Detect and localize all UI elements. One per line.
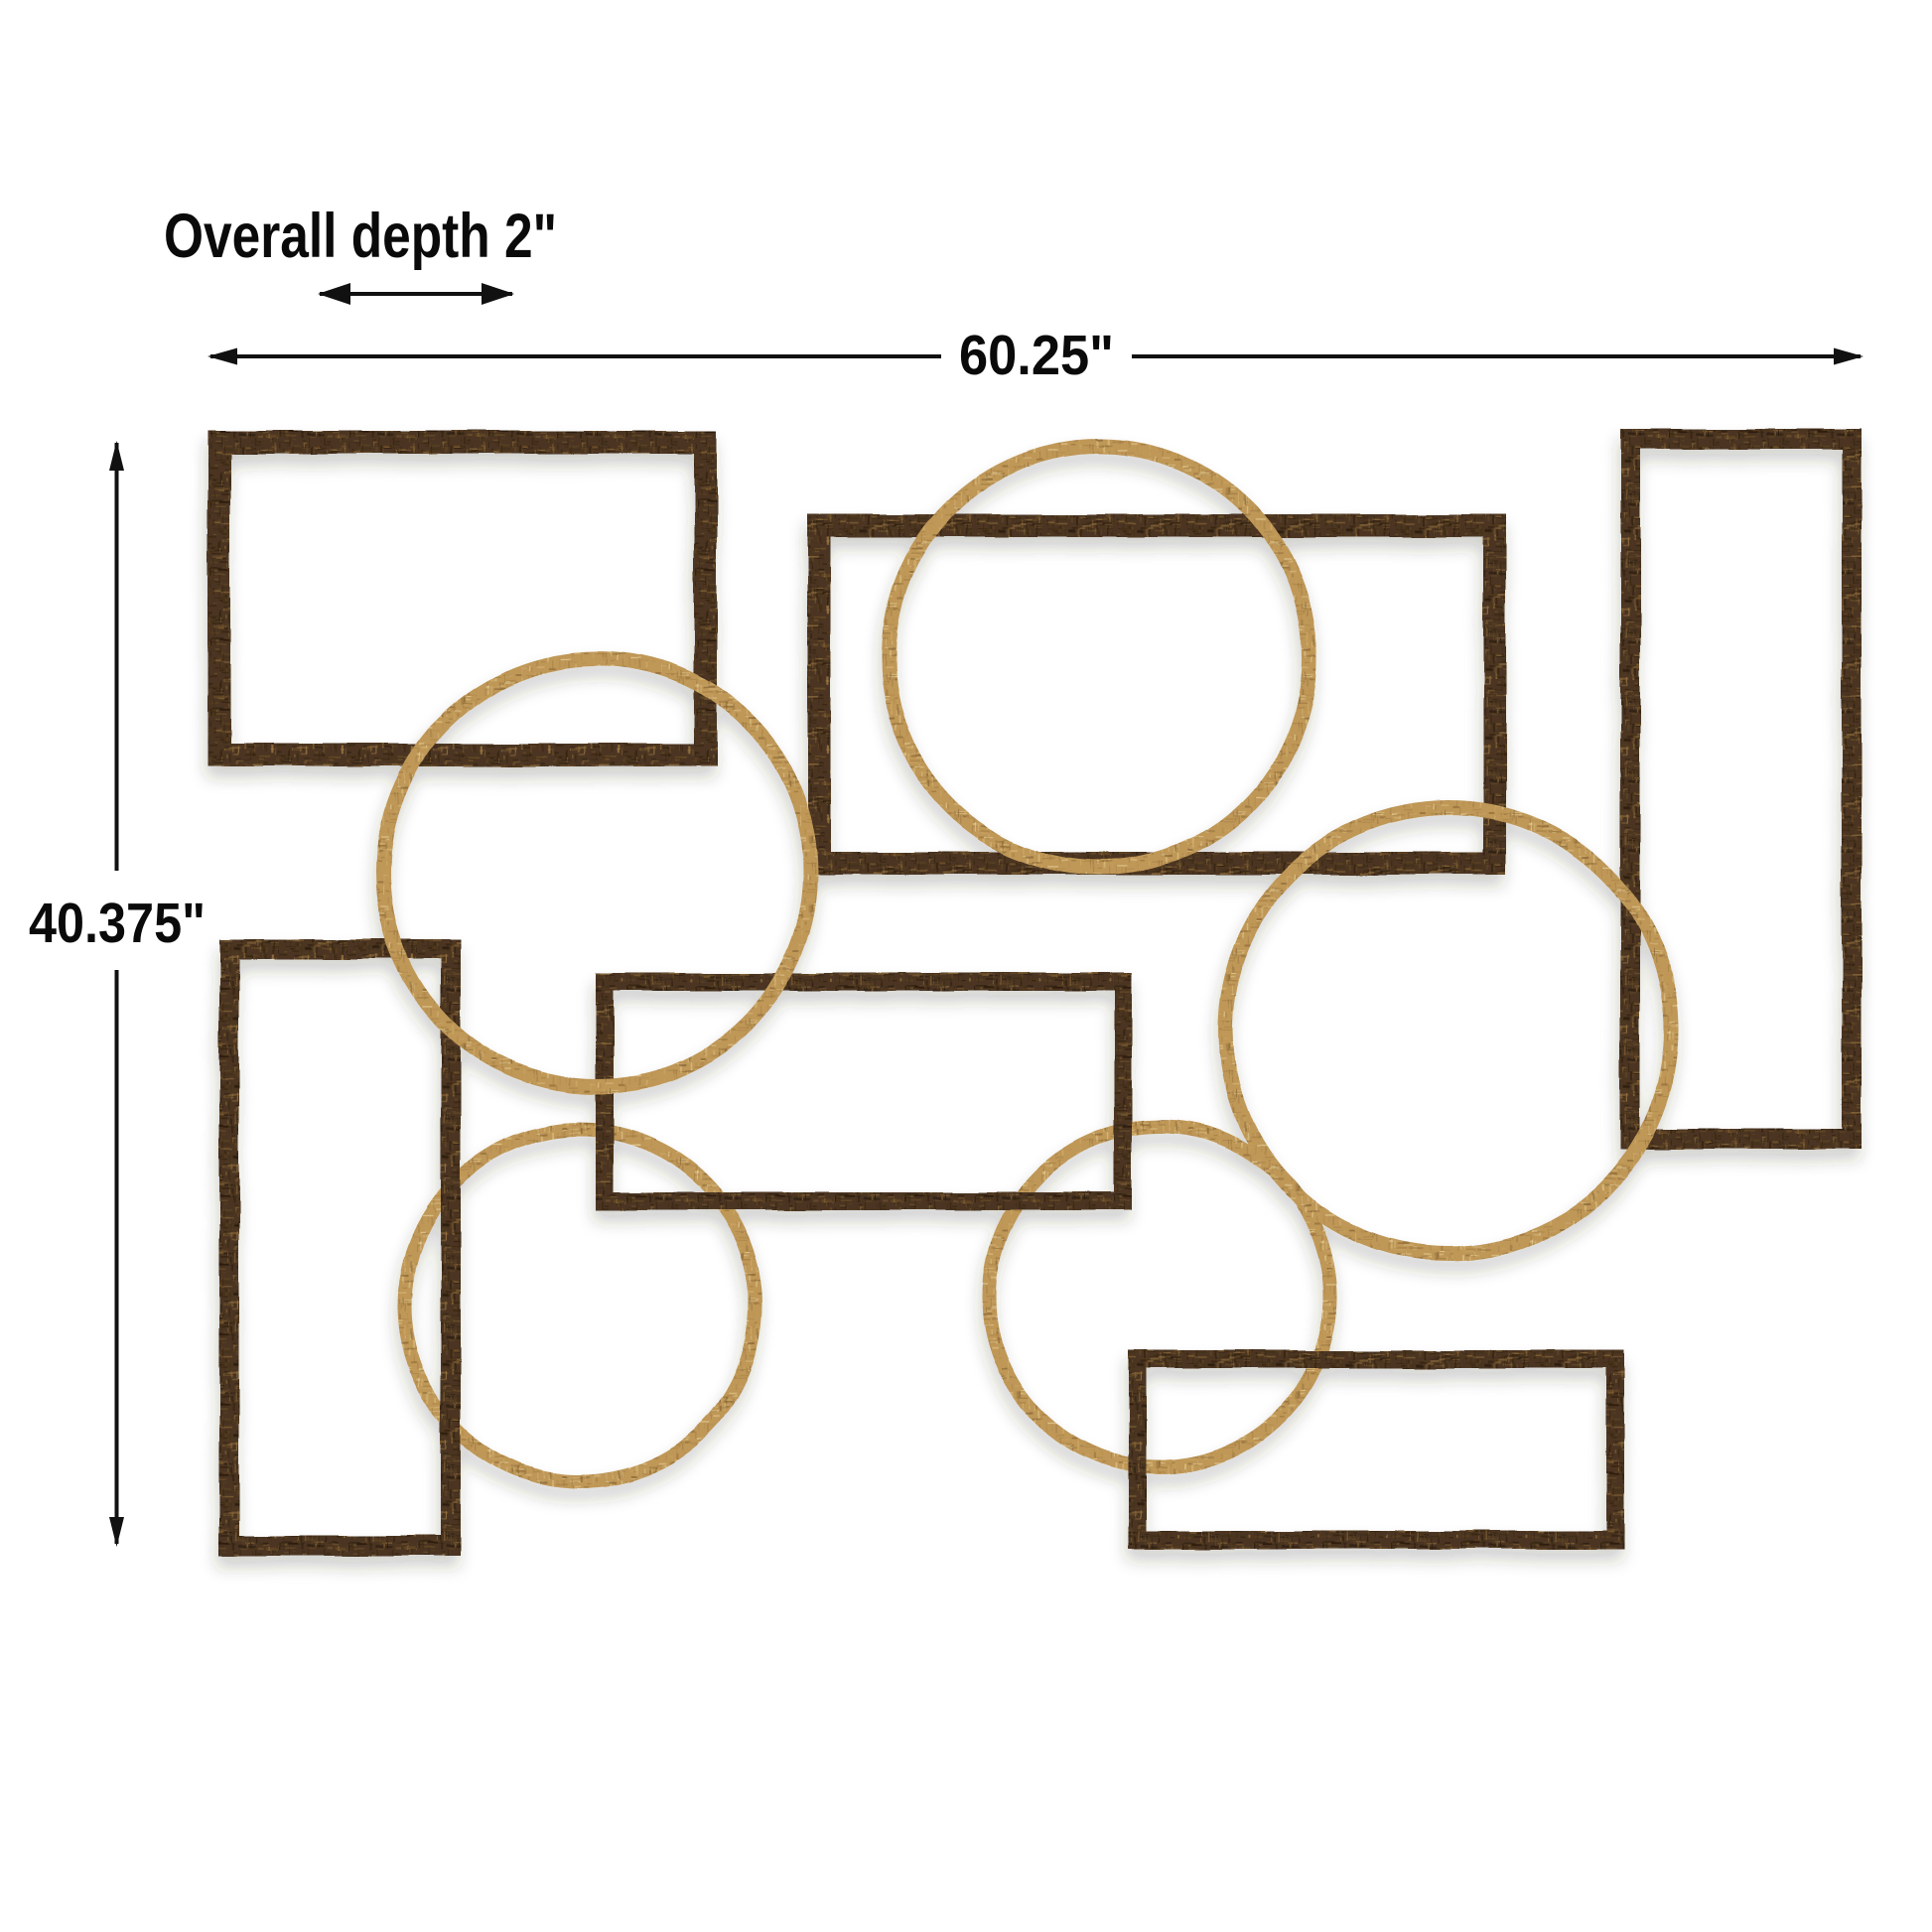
svg-text:40.375": 40.375" bbox=[29, 892, 206, 955]
svg-text:60.25": 60.25" bbox=[959, 324, 1114, 387]
svg-text:Overall depth 2": Overall depth 2" bbox=[164, 202, 557, 271]
